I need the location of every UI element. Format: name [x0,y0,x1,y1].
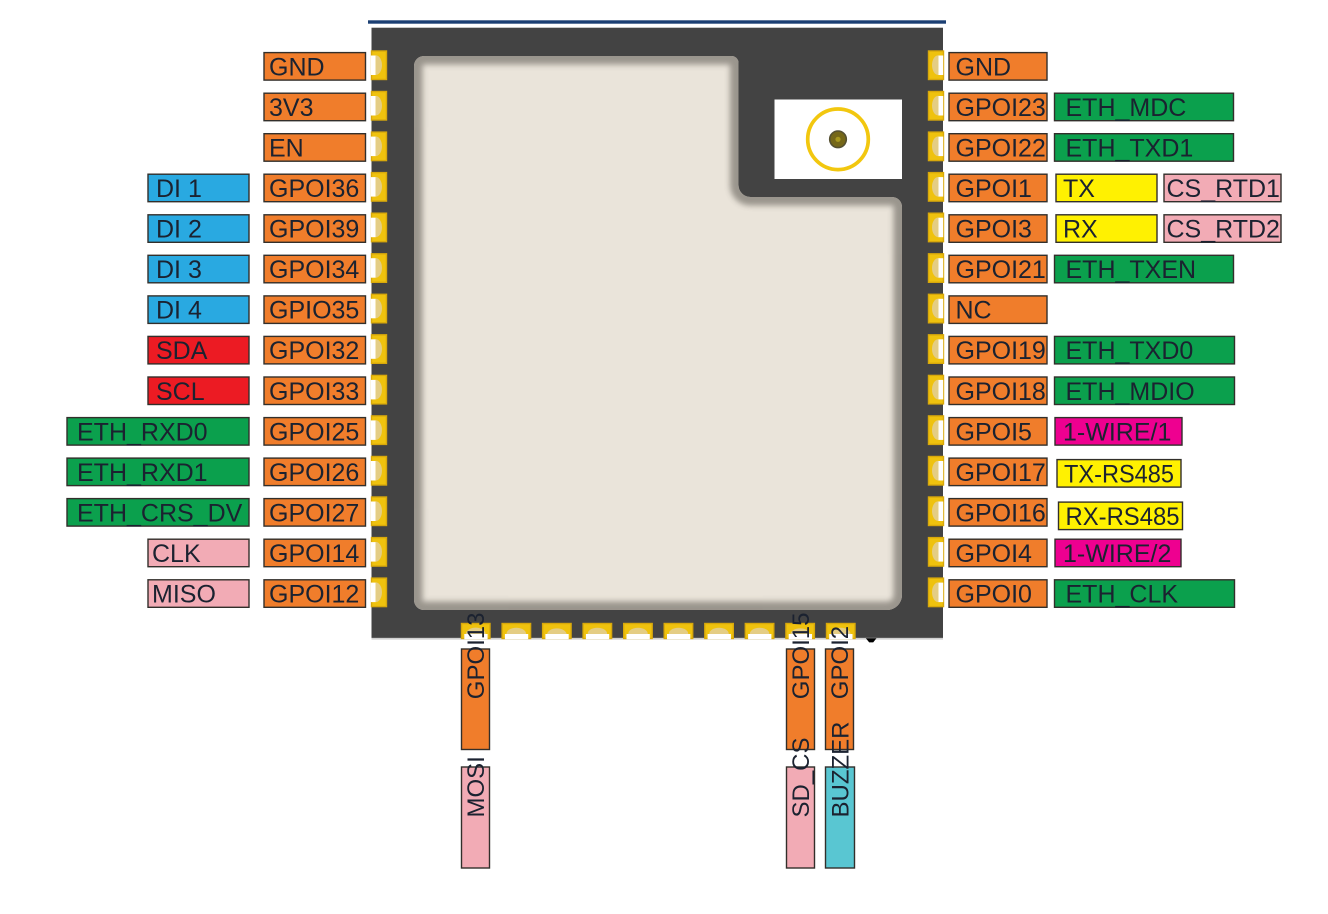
svg-text:GND: GND [956,53,1012,81]
svg-text:RX-RS485: RX-RS485 [1066,503,1180,531]
svg-text:GPOI22: GPOI22 [956,134,1046,162]
svg-text:EN: EN [269,134,304,162]
svg-text:GPOI15: GPOI15 [788,612,815,699]
svg-text:CLK: CLK [152,540,201,568]
svg-text:ETH_TXEN: ETH_TXEN [1066,256,1197,284]
svg-text:GPOI34: GPOI34 [269,256,359,284]
svg-text:ETH_MDC: ETH_MDC [1066,94,1187,122]
svg-text:ETH_RXD0: ETH_RXD0 [77,418,208,446]
svg-text:GPOI3: GPOI3 [956,216,1032,244]
svg-text:GPOI5: GPOI5 [956,418,1032,446]
svg-text:1-WIRE/2: 1-WIRE/2 [1063,540,1171,568]
svg-text:GPOI1: GPOI1 [956,175,1032,203]
svg-text:DI 1: DI 1 [156,175,202,203]
svg-text:1-WIRE/1: 1-WIRE/1 [1063,418,1171,446]
svg-text:GPOI26: GPOI26 [269,459,359,487]
svg-text:GPOI16: GPOI16 [956,499,1046,527]
svg-text:GPOI23: GPOI23 [956,94,1046,122]
svg-text:GPOI21: GPOI21 [956,256,1046,284]
svg-text:ETH_RXD1: ETH_RXD1 [77,459,208,487]
svg-text:ETH_CRS_DV: ETH_CRS_DV [77,499,243,527]
svg-text:ETH_TXD0: ETH_TXD0 [1066,337,1194,365]
svg-text:GPIO35: GPIO35 [269,297,359,325]
svg-text:GPOI27: GPOI27 [269,499,359,527]
svg-text:SD_CS: SD_CS [788,737,815,817]
svg-text:GPOI17: GPOI17 [956,459,1046,487]
svg-text:ETH_CLK: ETH_CLK [1066,581,1179,609]
svg-text:GPOI4: GPOI4 [956,540,1033,568]
svg-text:ETH_TXD1: ETH_TXD1 [1066,134,1194,162]
svg-text:GPOI13: GPOI13 [463,612,490,699]
svg-text:TX-RS485: TX-RS485 [1064,460,1174,488]
svg-text:GPOI12: GPOI12 [269,581,359,609]
svg-text:TX: TX [1063,175,1095,203]
svg-text:GPOI36: GPOI36 [269,175,359,203]
svg-text:GPOI25: GPOI25 [269,418,359,446]
svg-text:GPOI19: GPOI19 [956,337,1046,365]
svg-text:GPOI32: GPOI32 [269,337,359,365]
svg-text:GPOI39: GPOI39 [269,216,359,244]
svg-text:3V3: 3V3 [269,94,313,122]
svg-text:CS_RTD1: CS_RTD1 [1167,175,1280,203]
svg-text:NC: NC [956,297,992,325]
svg-text:SCL: SCL [156,378,205,406]
svg-text:GPOI2: GPOI2 [827,626,854,699]
svg-text:DI 4: DI 4 [156,297,202,325]
svg-text:DI 2: DI 2 [156,216,202,244]
svg-text:GPOI0: GPOI0 [956,581,1032,609]
svg-text:MISO: MISO [152,581,216,609]
svg-text:ETH_MDIO: ETH_MDIO [1066,378,1195,406]
svg-text:CS_RTD2: CS_RTD2 [1167,216,1280,244]
svg-text:SDA: SDA [156,337,208,365]
svg-text:GND: GND [269,53,325,81]
svg-text:GPOI33: GPOI33 [269,378,359,406]
svg-text:GPOI18: GPOI18 [956,378,1046,406]
svg-text:GPOI14: GPOI14 [269,540,359,568]
svg-text:RX: RX [1063,216,1098,244]
svg-text:BUZZER: BUZZER [828,722,855,818]
svg-text:DI 3: DI 3 [156,256,202,284]
svg-text:MOSI: MOSI [463,756,490,817]
